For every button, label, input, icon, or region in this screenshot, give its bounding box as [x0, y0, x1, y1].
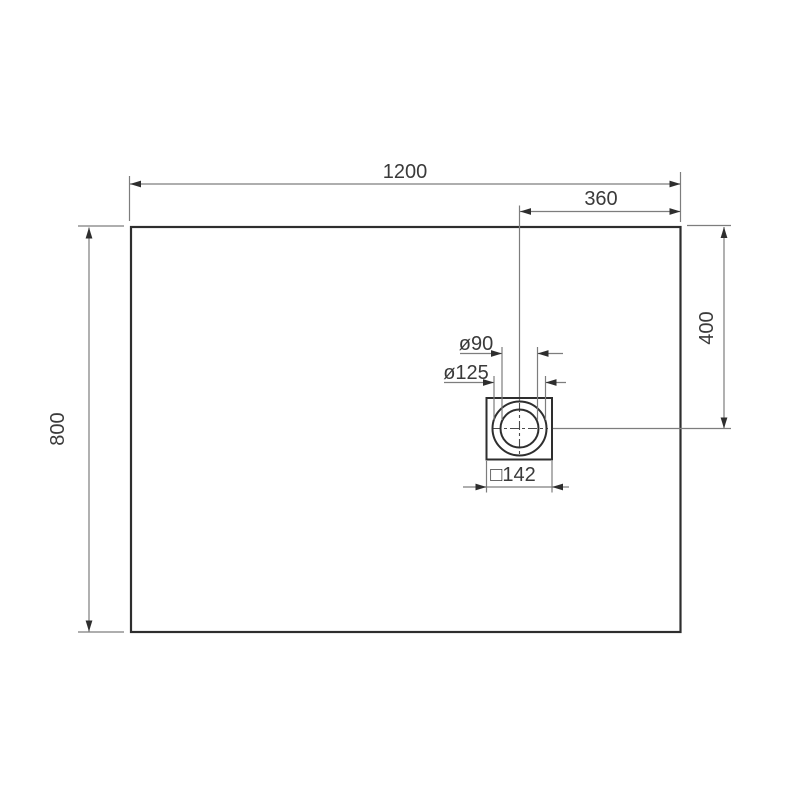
dim-label-drain-square: □142	[490, 464, 535, 486]
dim-overall-height: 800	[47, 226, 124, 632]
arrowhead-bottom-icon	[721, 418, 728, 429]
dim-label-drain-offset-right: 360	[584, 188, 617, 210]
shower-tray-drawing: 1200 360 800 400	[0, 0, 800, 800]
arrowhead-top-icon	[721, 227, 728, 238]
dim-label-drain-inner-diameter: ø90	[459, 333, 493, 355]
arrowhead-bottom-icon	[86, 621, 93, 632]
dim-label-drain-outer-diameter: ø125	[443, 362, 489, 384]
dim-drain-offset-top: 400	[687, 226, 731, 429]
dim-label-overall-width: 1200	[383, 161, 428, 183]
arrowhead-right-icon	[670, 181, 681, 188]
arrowhead-right-icon	[670, 208, 681, 215]
dim-label-overall-height: 800	[47, 412, 69, 445]
tray-outline	[131, 227, 681, 632]
arrowhead-left-icon	[520, 208, 531, 215]
arrowhead-left-icon	[130, 181, 141, 188]
technical-drawing-canvas: 1200 360 800 400	[0, 0, 800, 800]
dim-label-drain-offset-top: 400	[696, 311, 718, 344]
arrowhead-top-icon	[86, 228, 93, 239]
dim-drain-offset-right: 360	[520, 188, 681, 215]
